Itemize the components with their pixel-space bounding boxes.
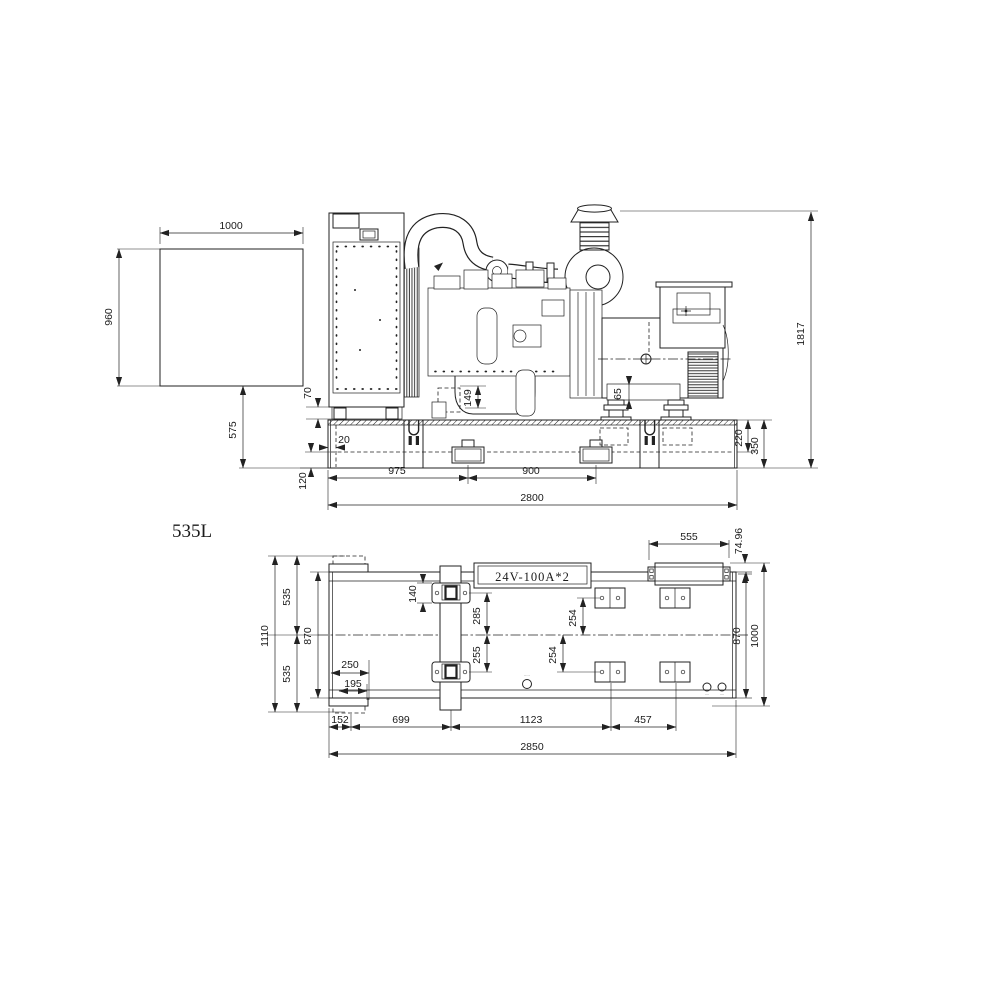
- dim-cross-pad-140: 140: [407, 585, 419, 603]
- dim-seg-152: 152: [331, 714, 349, 726]
- plan-view: 24V-100A*2: [259, 528, 770, 758]
- drawing-canvas: 1000 960 575: [0, 0, 1000, 1000]
- dim-seg-699: 699: [392, 714, 410, 726]
- dim-rail-upper: 220: [733, 429, 745, 447]
- plan-view-dimensions: 1110 535 535 870 250 195 555 74.96: [259, 528, 770, 758]
- dim-overall-height: 1817: [795, 322, 807, 346]
- dim-pad-box-250: 250: [341, 659, 359, 671]
- alternator-foot-right: [661, 400, 691, 420]
- dim-plan-base-length: 2850: [520, 741, 544, 753]
- cross-member: [432, 566, 470, 710]
- base-frame-side: [328, 420, 737, 468]
- engine: [428, 270, 602, 418]
- mount-pad-upper: [432, 583, 470, 603]
- flow-arrow-icon: [434, 263, 443, 272]
- dim-pocket-pitch: 900: [522, 465, 540, 477]
- dim-base-length: 2800: [520, 492, 544, 504]
- dim-half-width-top: 535: [281, 588, 293, 606]
- alternator-foot-left: [601, 400, 631, 420]
- dim-cross-pad-255: 255: [471, 646, 483, 664]
- mount-pad-lower: [432, 662, 470, 682]
- side-port-a-label: ····: [705, 693, 710, 697]
- air-discharge-duct-outline: 1000 960 575: [103, 220, 330, 468]
- genset-dimensional-drawing: 1000 960 575: [0, 0, 1000, 1000]
- bolt-pad-upper-right: [660, 588, 690, 608]
- drain-port-label: ·····: [524, 674, 530, 678]
- dim-frame-lower: 120: [297, 472, 309, 490]
- dim-duct-width: 1000: [219, 220, 243, 232]
- dim-muffler-offset: 74.96: [733, 528, 745, 554]
- dim-duct-to-base: 575: [227, 421, 239, 439]
- muffler: [648, 563, 730, 585]
- side-port-b-label: ····: [720, 693, 725, 697]
- dim-pocket-offset: 975: [388, 465, 406, 477]
- fork-pocket-right: [580, 440, 612, 463]
- dim-seg-1123: 1123: [520, 714, 543, 726]
- base-frame-plan: 24V-100A*2: [318, 556, 748, 713]
- dim-seg-457: 457: [634, 714, 652, 726]
- dim-duct-height: 960: [103, 308, 115, 326]
- dim-overall-width-right: 1000: [749, 624, 761, 648]
- bolt-pad-lower-right: [660, 662, 690, 682]
- dim-frame-inset: 20: [338, 434, 350, 446]
- battery-box: 24V-100A*2: [474, 563, 591, 588]
- dim-rail-height: 350: [749, 437, 761, 455]
- dim-muffler-length: 555: [680, 531, 698, 543]
- fork-pocket-left: [452, 440, 484, 463]
- dim-frame-width-left: 870: [302, 627, 314, 645]
- dim-pad-254-lower: 254: [547, 646, 559, 664]
- dim-cross-pad-285: 285: [471, 607, 483, 625]
- model-label: 535L: [172, 521, 212, 542]
- drain-port: ·····: [523, 674, 532, 689]
- dim-alt-base-height: 65: [612, 388, 624, 400]
- dim-radiator-gap: 70: [302, 387, 314, 399]
- dim-overall-width: 1110: [259, 625, 271, 647]
- dim-oil-pan-height: 149: [462, 389, 474, 407]
- battery-label: 24V-100A*2: [495, 570, 570, 584]
- dim-frame-width-right: 870: [731, 627, 743, 645]
- dim-pad-254-upper: 254: [567, 609, 579, 627]
- dim-half-width-bottom: 535: [281, 665, 293, 683]
- side-view: 1000 960 575: [103, 205, 818, 542]
- dim-pad-box-195: 195: [344, 678, 362, 690]
